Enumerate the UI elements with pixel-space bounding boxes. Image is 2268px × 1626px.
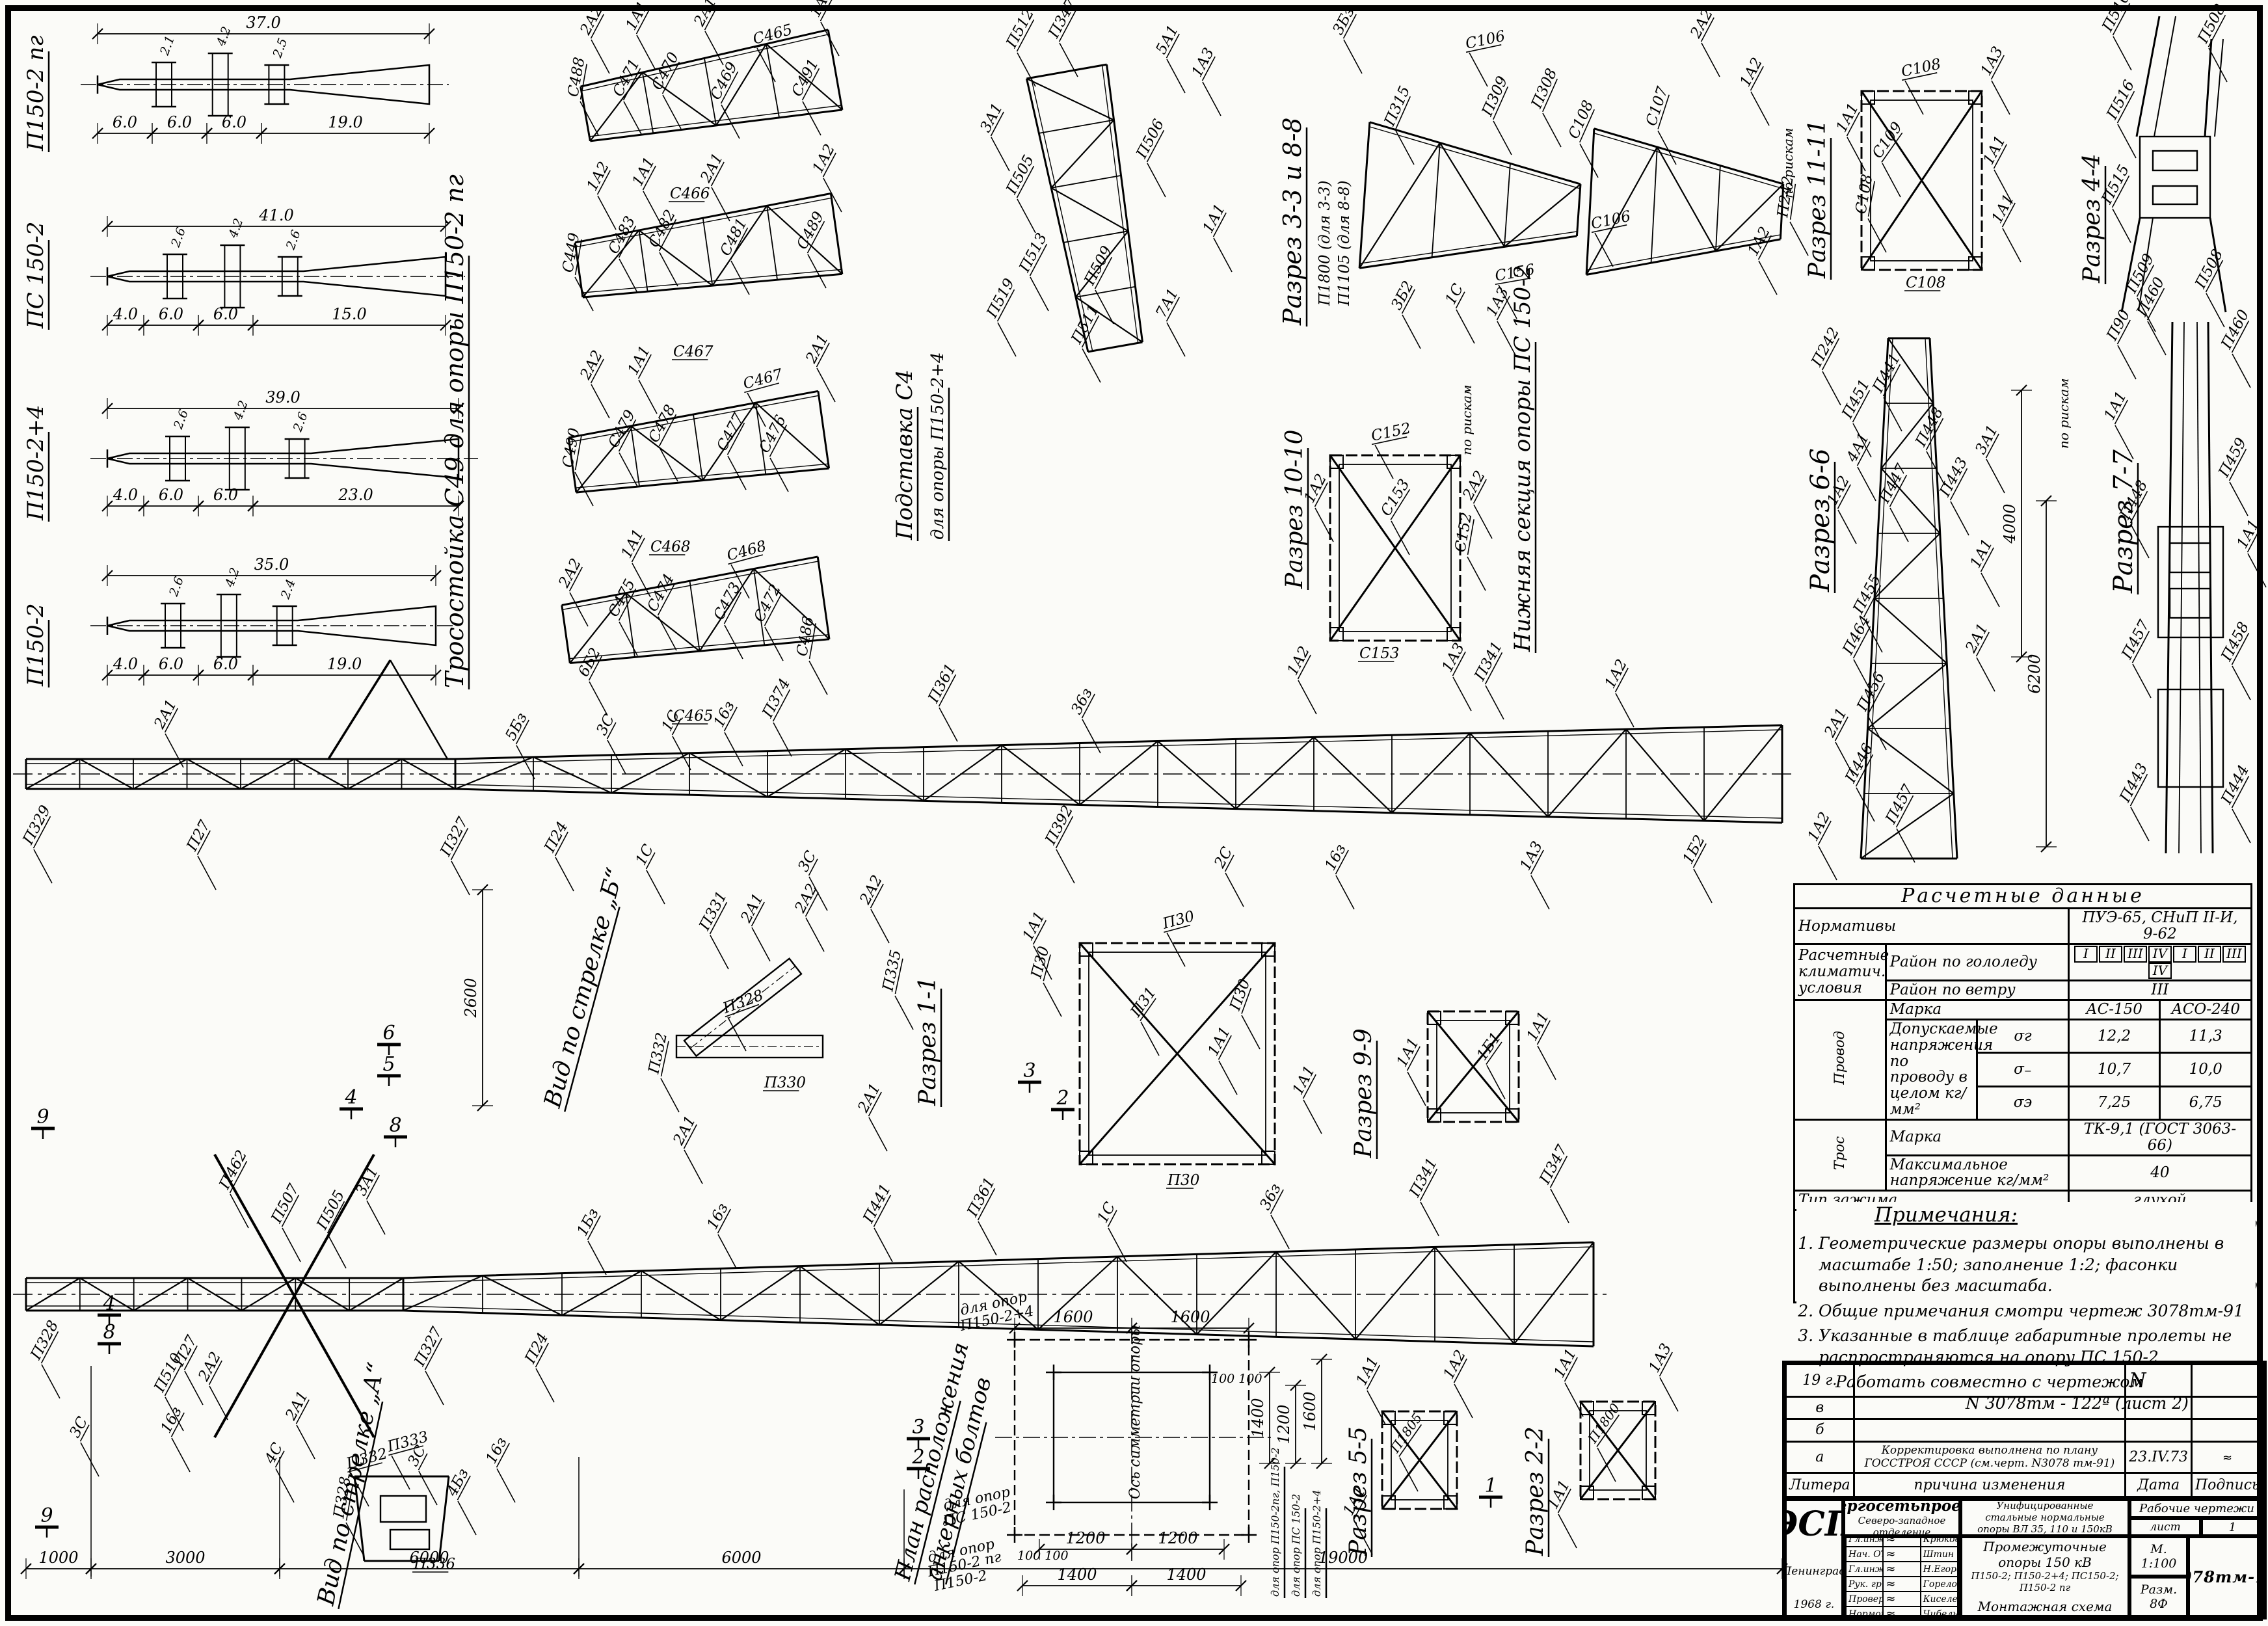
line: [2197, 322, 2201, 853]
title-block: ЭСП Ленинград 1968 г. энергосетьпроект С…: [1782, 1496, 2267, 1619]
svg-text:37.0: 37.0: [246, 14, 280, 32]
svg-text:С469: С469: [707, 59, 741, 103]
svg-text:3000: 3000: [165, 1549, 205, 1567]
org-name: энергосетьпроект: [1843, 1499, 1960, 1515]
calc-title: Расчетные данные: [1794, 885, 2252, 909]
personnel-role: Нормоконтр.: [1846, 1606, 1883, 1617]
callout-1А1: 1А1: [1393, 1035, 1426, 1106]
svg-text:6.0: 6.0: [159, 486, 183, 504]
svg-text:6.0: 6.0: [159, 655, 183, 673]
esp-abbrev: ЭСП: [1785, 1504, 1843, 1544]
signature-scribble: ≈: [1886, 1536, 1895, 1546]
svg-text:1Бз: 1Бз: [574, 1206, 602, 1239]
callout-С153: С153: [1377, 476, 1413, 555]
callout-3С: 3С: [593, 712, 626, 774]
svg-text:2А1: 2А1: [738, 890, 767, 926]
dim-19.0: 19.0: [248, 655, 441, 686]
svg-text:С109: С109: [1869, 119, 1906, 161]
svg-text:С467: С467: [673, 343, 714, 360]
tros-label: Трос: [1794, 1119, 1886, 1190]
svg-text:для опор П150-2пг, П150-2: для опор П150-2пг, П150-2: [1269, 1447, 1281, 1597]
callout-1Бз: 1Бз: [573, 1206, 606, 1275]
svg-text:2А2: 2А2: [1460, 468, 1489, 503]
personnel-name: Н.Егоров: [1921, 1562, 1958, 1577]
svg-text:2.6: 2.6: [290, 410, 310, 434]
callout-П328: П328: [27, 1318, 62, 1398]
callout-П443: П443: [2116, 760, 2151, 841]
personnel-signature: ≈: [1883, 1577, 1920, 1592]
svg-text:1А1: 1А1: [622, 0, 652, 33]
view-arrow-b: Вид по стрелке „Б“: [539, 865, 629, 1112]
svg-text:П1805: П1805: [1387, 1410, 1425, 1456]
bolt: [1007, 1527, 1022, 1543]
svg-text:1А2: 1А2: [1284, 643, 1313, 678]
dim-6.0: 6.0: [147, 113, 212, 144]
svg-text:Разрез 7-7: Разрез 7-7: [2109, 449, 2139, 594]
sigma-e-label: σэ: [1977, 1086, 2069, 1119]
rect: [380, 1496, 426, 1522]
callout-П459: П459: [2215, 435, 2250, 516]
callout-1А2: 1А2: [583, 159, 616, 230]
drawing-sheet: П150-2 пг2.14.22.537.06.06.06.019.0ПС 15…: [0, 0, 2268, 1626]
personnel-row: Нач. ОТП≈Штин: [1846, 1547, 1958, 1562]
callout-П462: П462: [215, 1147, 250, 1228]
marker-9: 9: [31, 1106, 55, 1139]
svg-text:4: 4: [344, 1086, 357, 1109]
svg-text:по рискам: по рискам: [2056, 378, 2072, 449]
svg-text:4.0: 4.0: [113, 655, 138, 673]
svg-text:16з: 16з: [704, 1201, 732, 1233]
dim-6200: 6200: [2025, 496, 2057, 852]
marker-5: 5: [377, 1053, 401, 1086]
sheet-num: 1: [2229, 1521, 2236, 1534]
callout-П508: П508: [2194, 1, 2229, 82]
rev-v: в: [1786, 1397, 1854, 1419]
svg-text:9: 9: [36, 1106, 49, 1128]
callout-С470: С470: [648, 49, 682, 129]
callout-П327: П327: [410, 1324, 446, 1405]
callout-С475: С475: [604, 576, 639, 656]
svg-text:2А1: 2А1: [691, 0, 720, 30]
svg-text:1: 1: [1484, 1474, 1497, 1497]
section-11-11: [1861, 91, 1982, 270]
svg-text:Разрез 9-9: Разрез 9-9: [1350, 1028, 1377, 1158]
svg-text:П90: П90: [2103, 307, 2134, 344]
svg-text:5А1: 5А1: [1153, 22, 1182, 57]
callout-П31: П31: [1127, 984, 1160, 1056]
rev-a-cause: Корректировка выполнена по плану ГОССТРО…: [1854, 1441, 2126, 1473]
truss-nizh-2: [1586, 129, 1785, 285]
callout-С478: С478: [645, 402, 679, 481]
svg-text:1А2: 1А2: [583, 159, 613, 193]
svg-text:2.5: 2.5: [270, 36, 290, 60]
svg-text:1600: 1600: [1301, 1391, 1319, 1431]
marka-label: Марка: [1886, 1000, 2068, 1020]
dim-4.0: 4.0: [102, 486, 149, 516]
svg-text:4.2: 4.2: [222, 566, 243, 590]
svg-text:2А1: 2А1: [151, 697, 180, 732]
callout-7А1: 7А1: [1152, 286, 1185, 356]
text-100 100: 100 100: [1211, 1372, 1262, 1386]
personnel-signature: ≈: [1883, 1562, 1920, 1577]
personnel-signature: ≈: [1883, 1536, 1920, 1547]
callout-2А2: 2А2: [791, 881, 824, 952]
dim-35.0: 35.0: [102, 555, 441, 586]
section-title-9-9: Разрез 9-9: [1350, 1028, 1377, 1159]
callout-2А2: 2А2: [194, 1349, 228, 1420]
svg-text:Вид по стрелке „Б“: Вид по стрелке „Б“: [539, 865, 629, 1111]
svg-text:С477: С477: [714, 410, 747, 454]
callout-П446: П446: [1841, 741, 1876, 821]
sheet-no: N3078тм-122ª: [2188, 1567, 2264, 1586]
svg-text:6000: 6000: [409, 1549, 449, 1567]
svg-text:2А1: 2А1: [282, 1388, 312, 1423]
svg-text:С107: С107: [1643, 85, 1672, 128]
callout-П30: П30: [1028, 944, 1061, 1017]
callout-1А1: 1А1: [1550, 1346, 1583, 1417]
svg-text:2.6: 2.6: [171, 408, 191, 432]
dim-6.0: 6.0: [202, 113, 267, 144]
callout-1А1: 1А1: [2233, 516, 2266, 587]
city-line-1: Ленинград: [1785, 1565, 1843, 1578]
callout-2А1: 2А1: [737, 890, 770, 961]
marker-9: 9: [35, 1504, 59, 1538]
callout-С106: С106: [1588, 208, 1633, 267]
profile-p150-2: 2.64.22.4: [90, 566, 455, 657]
callout-1А3: 1А3: [1188, 45, 1221, 116]
personnel-name: Крюков: [1921, 1536, 1958, 1547]
rev-n-cell: N: [2126, 1365, 2192, 1397]
line: [2166, 322, 2172, 853]
section-title-4-4: Разрез 4-4: [2079, 153, 2105, 284]
drawing-title-2: П150-2; П150-2+4; ПС150-2; П150-2 пг: [1962, 1570, 2128, 1593]
callout-1А1: 1А1: [2100, 388, 2133, 459]
note-1: Геометрические размеры опоры выполнены в…: [1819, 1233, 2256, 1297]
value-cell: II: [2099, 946, 2122, 963]
callout-1С: 1С: [1093, 1199, 1127, 1262]
rev-b: б: [1786, 1419, 1854, 1441]
svg-text:2А2: 2А2: [857, 872, 886, 907]
signature-scribble: ≈: [1886, 1547, 1895, 1561]
callout-1А2: 1А2: [1804, 809, 1837, 880]
value-cell: IV: [2148, 963, 2172, 980]
section-title-2-2: Разрез 2-2: [1522, 1426, 1549, 1557]
callout-1А1: 1А1: [1523, 1009, 1556, 1080]
svg-text:1А1: 1А1: [1833, 100, 1862, 135]
doctype-cell: Рабочие чертежи: [2129, 1499, 2264, 1518]
callout-П519: П519: [983, 276, 1018, 356]
callout-П242: П242: [1808, 325, 1843, 405]
svg-text:6.0: 6.0: [213, 305, 238, 323]
callout-1А1: 1А1: [1832, 100, 1865, 171]
personnel-name: Чибель: [1921, 1606, 1958, 1617]
series-2: стальные нормальные: [1985, 1512, 2105, 1523]
callout-П460: П460: [2217, 307, 2252, 388]
svg-text:1А1: 1А1: [1967, 536, 1996, 570]
sigma-m-2: 10,0: [2160, 1053, 2252, 1086]
label-trosostoyka: Тросостойка С49 для опоры П150-2 пг: [440, 174, 469, 689]
callout-1А2: 1А2: [1744, 224, 1777, 295]
callout-16з: 16з: [1321, 842, 1354, 909]
personnel-row: Нормоконтр.≈Чибель: [1846, 1606, 1958, 1617]
tros-marka-value: ТК-9,1 (ГОСТ 3063-66): [2068, 1119, 2251, 1155]
podpis-header: Подпись: [2191, 1473, 2263, 1497]
callout-П511: П511: [1067, 302, 1102, 382]
svg-text:2.6: 2.6: [168, 226, 189, 250]
callout-1А1: 1А1: [1988, 191, 2021, 262]
value-cell: IV: [2148, 946, 2172, 963]
callout-С467: С467: [672, 343, 714, 360]
callout-1А1: 1А1: [1979, 133, 2012, 204]
personnel-name: Горелова: [1921, 1577, 1958, 1592]
svg-text:С491: С491: [788, 56, 822, 100]
callout-П441: П441: [1869, 351, 1904, 431]
razm: Разм. 8Ф: [2131, 1582, 2186, 1611]
callout-2А2: 2А2: [555, 555, 588, 626]
section-sub-8-8: П1105 (для 8-8): [1336, 180, 1353, 306]
svg-text:П330: П330: [764, 1074, 806, 1091]
svg-text:3А1: 3А1: [353, 1164, 382, 1198]
svg-text:39.0: 39.0: [265, 388, 300, 406]
svg-text:100 100: 100 100: [1017, 1549, 1069, 1563]
svg-text:1600: 1600: [1053, 1308, 1093, 1326]
svg-text:4.2: 4.2: [226, 217, 246, 241]
series-1: Унифицированные: [1996, 1500, 2093, 1512]
callout-С449: С449: [559, 232, 593, 311]
callout-16з: 16з: [482, 1435, 515, 1502]
callout-П505: П505: [1002, 152, 1037, 233]
personnel-role: Нач. ОТП: [1846, 1547, 1883, 1562]
svg-text:для опор П150-2+4: для опор П150-2+4: [1311, 1489, 1323, 1597]
org-cell: энергосетьпроект Северо-западное отделен…: [1843, 1499, 1960, 1536]
svg-text:1600: 1600: [1170, 1308, 1210, 1326]
personnel-signature: ≈: [1883, 1592, 1920, 1606]
callout-П309: П309: [1478, 73, 1512, 155]
svg-text:Разрез 4-4: Разрез 4-4: [2079, 153, 2105, 284]
tros-marka-label: Марка: [1886, 1119, 2068, 1155]
dim-1400: 1400: [1017, 1566, 1137, 1596]
personnel-row: Рук. гр.≈Горелова: [1846, 1577, 1958, 1592]
svg-text:по рискам: по рискам: [1780, 127, 1796, 198]
signature-scribble: ≈: [1886, 1577, 1895, 1591]
marker-1: 1: [1479, 1474, 1502, 1508]
callout-П332: П332: [645, 1031, 679, 1112]
svg-text:15.0: 15.0: [332, 305, 366, 323]
svg-text:С468: С468: [650, 539, 691, 555]
personnel-row: Гл.инж. отделен.≈Крюков: [1846, 1536, 1958, 1547]
svg-text:С489: С489: [794, 209, 827, 252]
section-title-1-1: Разрез 1-1: [914, 976, 941, 1107]
callout-П457: П457: [2118, 617, 2153, 698]
scale: М. 1:100: [2131, 1542, 2186, 1571]
svg-text:П1800 (для 3-3): П1800 (для 3-3): [1316, 180, 1333, 306]
callout-1А3: 1А3: [1438, 640, 1471, 711]
personnel-signature: ≈: [1883, 1547, 1920, 1562]
callout-3Б2: 3Б2: [1387, 278, 1421, 349]
rect: [390, 1530, 429, 1549]
svg-text:Тросостойка С49 для опоры П150: Тросостойка С49 для опоры П150-2 пг: [440, 174, 469, 688]
personnel-role: Гл.инж. отделен.: [1846, 1536, 1883, 1547]
svg-text:6.0: 6.0: [159, 305, 183, 323]
svg-text:1А2: 1А2: [809, 141, 838, 176]
dim-6.0: 6.0: [139, 486, 204, 516]
callout-1А2: 1А2: [1736, 55, 1769, 126]
signature-scribble: ≈: [2222, 1451, 2232, 1465]
callout-16з: 16з: [710, 699, 743, 766]
notes-title: Примечания:: [1874, 1202, 2256, 1228]
svg-text:С108: С108: [1566, 98, 1597, 142]
marker-8: 8: [98, 1321, 121, 1354]
label-nizh-sekciya: Нижняя секция опоры ПС 150-2: [1510, 265, 1536, 653]
razm-cell: Разм. 8Ф: [2129, 1577, 2188, 1617]
svg-text:3Бз: 3Бз: [1329, 5, 1358, 38]
marker-4: 4: [340, 1086, 363, 1119]
sigma-m-label: σ₋: [1977, 1053, 2069, 1086]
dim-6.0: 6.0: [139, 305, 204, 336]
dim-6000: 6000: [574, 1549, 909, 1579]
svg-text:С467: С467: [741, 366, 784, 393]
svg-text:Разрез 1-1: Разрез 1-1: [914, 976, 941, 1106]
svg-text:Разрез 10-10: Разрез 10-10: [1281, 429, 1308, 589]
plan-r-lbl-2: для опор ПС 150-2: [1290, 1494, 1305, 1598]
note-po-riskam-3: по рискам: [2056, 378, 2072, 449]
svg-text:П30: П30: [1160, 908, 1196, 933]
veter-label: Район по ветру: [1886, 981, 2068, 1000]
callout-1А3: 1А3: [1516, 838, 1549, 909]
callout-2А2: 2А2: [1687, 6, 1720, 77]
callout-16з: 16з: [703, 1201, 736, 1268]
callout-С466: С466: [669, 185, 710, 202]
callout-3А1: 3А1: [976, 100, 1009, 171]
callout-П327: П327: [436, 814, 472, 895]
svg-text:8: 8: [389, 1114, 401, 1137]
svg-text:2А2: 2А2: [577, 3, 606, 38]
callout-1А1: 1А1: [1199, 201, 1232, 272]
marka-2: АСО-240: [2160, 1000, 2252, 1020]
svg-text:1А1: 1А1: [1205, 1024, 1234, 1058]
section-title-7-7: Разрез 7-7: [2109, 449, 2139, 594]
sheet-word-cell: лист: [2129, 1518, 2201, 1536]
svg-text:36з: 36з: [1257, 1181, 1285, 1213]
svg-text:Разрез 6-6: Разрез 6-6: [1806, 448, 1835, 593]
marker-3: 3: [1018, 1060, 1041, 1093]
callout-П347: П347: [1536, 1142, 1571, 1223]
callout-2А1: 2А1: [282, 1388, 315, 1459]
svg-text:С473: С473: [710, 580, 744, 623]
svg-text:7А1: 7А1: [1153, 286, 1182, 320]
rev-a: а: [1786, 1441, 1854, 1473]
callout-П315: П315: [1381, 83, 1414, 165]
callout-36з: 36з: [1256, 1181, 1289, 1249]
svg-text:36з: 36з: [1068, 686, 1096, 717]
callout-2А2: 2А2: [856, 872, 889, 943]
svg-text:1200: 1200: [1065, 1529, 1105, 1547]
callout-1А1: 1А1: [1352, 1353, 1385, 1424]
svg-text:П1105 (для 8-8): П1105 (для 8-8): [1336, 180, 1353, 306]
callout-П507: П507: [267, 1181, 302, 1262]
callout-П513: П513: [1015, 230, 1050, 311]
svg-text:2.6: 2.6: [167, 575, 187, 599]
callout-2А2: 2А2: [576, 347, 609, 418]
svg-text:С466: С466: [670, 185, 710, 202]
svg-text:1А1: 1А1: [1988, 191, 2018, 226]
dim-1000: 1000: [21, 1549, 96, 1579]
svg-text:6000: 6000: [721, 1549, 761, 1567]
rect: [2153, 151, 2197, 170]
svg-text:1А1: 1А1: [1353, 1353, 1382, 1388]
dim-23.0: 23.0: [248, 486, 464, 516]
personnel-name: Штин: [1921, 1547, 1958, 1562]
dim-6.0: 6.0: [193, 305, 258, 336]
svg-text:1А1: 1А1: [1199, 201, 1229, 235]
callout-1Б2: 1Б2: [1679, 833, 1712, 903]
callout-П341: П341: [1406, 1155, 1441, 1236]
plan-r-lbl-3: для опор П150-2+4: [1311, 1489, 1326, 1598]
svg-text:2А1: 2А1: [803, 331, 832, 366]
marker-6: 6: [377, 1022, 401, 1055]
svg-text:2А2: 2А2: [555, 555, 585, 591]
callout-16з: 16з: [157, 1404, 190, 1472]
callout-3А1: 3А1: [352, 1164, 385, 1234]
svg-text:1А3: 1А3: [1188, 45, 1218, 79]
section-1-1: [1080, 943, 1275, 1164]
svg-text:2А1: 2А1: [855, 1080, 884, 1115]
section-title-6-6: Разрез 6-6: [1806, 448, 1835, 593]
bolt: [1202, 1495, 1218, 1510]
svg-text:Разрез 3-3 и 8-8: Разрез 3-3 и 8-8: [1278, 117, 1307, 326]
value-cell: III: [2124, 946, 2147, 963]
svg-text:С108: С108: [1900, 56, 1943, 81]
svg-text:2.1: 2.1: [157, 34, 178, 58]
svg-text:2А2: 2А2: [1687, 6, 1716, 41]
series-cell: Унифицированные стальные нормальные опор…: [1960, 1499, 2129, 1536]
dim-15.0: 15.0: [248, 305, 451, 336]
svg-text:4000: 4000: [2001, 503, 2019, 544]
dim-41.0: 41.0: [102, 206, 451, 237]
svg-text:5: 5: [382, 1053, 395, 1076]
profile-title-ps150-2: ПС 150-2: [23, 222, 49, 330]
callout-П448: П448: [1912, 405, 1947, 485]
rect: [2153, 186, 2197, 204]
sigma-e-2: 6,75: [2160, 1086, 2252, 1119]
callout-П392: П392: [1041, 803, 1076, 883]
callout-П347: П347: [1045, 0, 1080, 77]
gololed-values: IIIIIIIVIIIIIIIV: [2068, 944, 2251, 981]
section-title-3-3-8-8: Разрез 3-3 и 8-8: [1278, 117, 1307, 327]
svg-text:6200: 6200: [2025, 654, 2044, 693]
revision-block: 19 г. N в б а Корректировка выполнена по…: [1782, 1361, 2267, 1501]
rev-a-sign: ≈: [2191, 1441, 2263, 1473]
svg-text:3А1: 3А1: [1972, 422, 2001, 457]
svg-text:1А2: 1А2: [1601, 656, 1631, 691]
callout-1С: 1С: [632, 842, 665, 904]
note-2: Общие примечания смотри чертеж 3078тм-91: [1819, 1301, 2256, 1322]
svg-text:1А2: 1А2: [1440, 1347, 1469, 1381]
sheet-no-cell: N3078тм-122ª: [2188, 1536, 2264, 1617]
callout-2С: 2С: [1210, 844, 1244, 907]
sigma-e-1: 7,25: [2068, 1086, 2160, 1119]
svg-text:1А1: 1А1: [618, 526, 647, 561]
svg-text:19000: 19000: [1318, 1549, 1368, 1567]
svg-text:С152: С152: [1370, 420, 1413, 445]
callout-1А1: 1А1: [1288, 1063, 1322, 1134]
provod-label: Провод: [1794, 1000, 1886, 1120]
callout-С472: С472: [750, 581, 784, 661]
callout-1А1: 1А1: [1966, 536, 1999, 607]
svg-text:16з: 16з: [1322, 842, 1350, 873]
bolt: [1241, 1527, 1257, 1543]
svg-text:С108: С108: [1906, 274, 1946, 291]
